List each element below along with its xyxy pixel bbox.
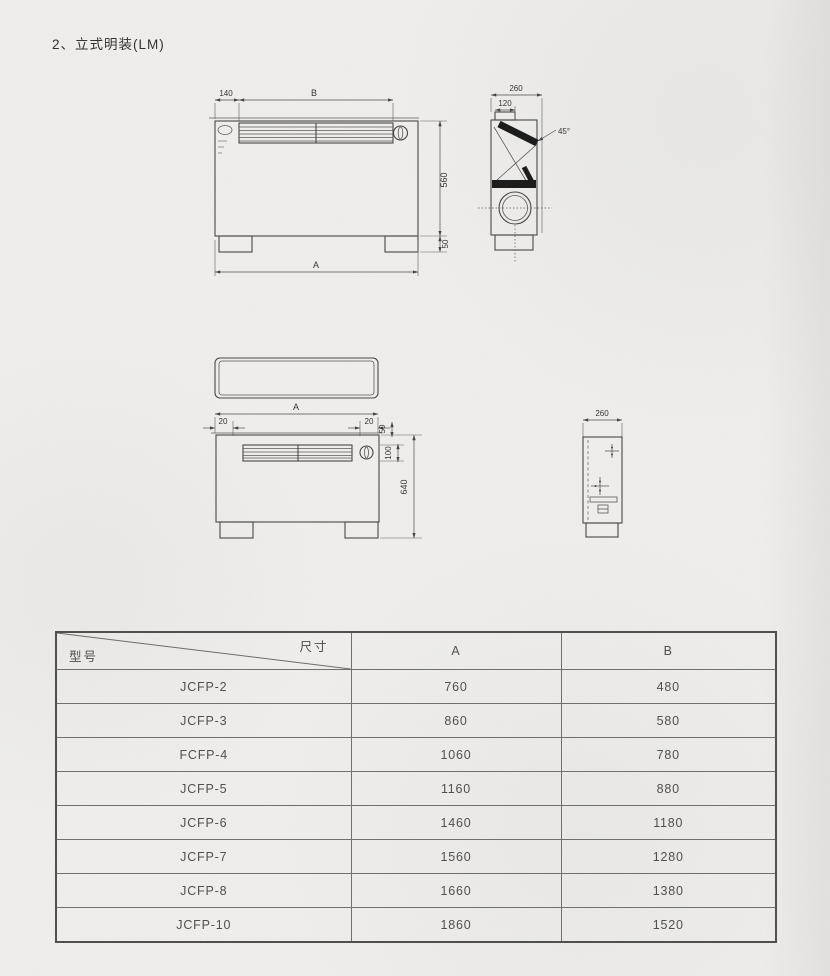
pipe-connection-top <box>605 444 619 458</box>
dim-label-width: A <box>313 260 319 270</box>
connector-block <box>598 505 608 513</box>
pipe-connection-mid <box>591 477 609 495</box>
side-view-2-drawing: 260 <box>583 409 622 537</box>
table-header-row: 型号 尺寸 A B <box>56 632 776 670</box>
foot-right-2 <box>345 522 378 538</box>
cell-model: JCFP-6 <box>56 806 351 840</box>
cell-a: 1460 <box>351 806 561 840</box>
table-row: JCFP-6 1460 1180 <box>56 806 776 840</box>
control-knob-2 <box>360 446 373 459</box>
cell-a: 1660 <box>351 874 561 908</box>
plan-view-drawing <box>215 358 378 398</box>
front-elevation-2-drawing: A 20 20 <box>203 402 422 538</box>
cell-b: 480 <box>561 670 776 704</box>
cell-model: JCFP-2 <box>56 670 351 704</box>
cell-b: 1380 <box>561 874 776 908</box>
dim-label-outlet: 120 <box>498 99 512 108</box>
foot-right <box>385 236 418 252</box>
dim-label-depth: 260 <box>509 84 523 93</box>
cell-b: 580 <box>561 704 776 738</box>
table-row: JCFP-8 1660 1380 <box>56 874 776 908</box>
foot-left-2 <box>220 522 253 538</box>
cell-model: JCFP-10 <box>56 908 351 943</box>
dim-label-foot: 50 <box>441 239 450 248</box>
side-section-drawing: 260 120 45° <box>478 84 570 262</box>
table-header-model-dim: 型号 尺寸 <box>56 632 351 670</box>
dimension-table: 型号 尺寸 A B JCFP-2 760 480 JCFP-3 860 580 … <box>55 631 775 943</box>
table-header-a: A <box>351 632 561 670</box>
cell-model: JCFP-5 <box>56 772 351 806</box>
table-row: JCFP-7 1560 1280 <box>56 840 776 874</box>
dim-label-height: 560 <box>439 172 449 187</box>
dim-label-grille-width: B <box>311 88 317 98</box>
cell-b: 780 <box>561 738 776 772</box>
table-row: FCFP-4 1060 780 <box>56 738 776 772</box>
table-row: JCFP-5 1160 880 <box>56 772 776 806</box>
catalog-page: 2、立式明装(LM) <box>0 0 830 976</box>
nameplate-detail <box>218 126 232 135</box>
header-model-label: 型号 <box>69 646 98 665</box>
cell-b: 1280 <box>561 840 776 874</box>
cell-a: 1560 <box>351 840 561 874</box>
cell-b: 1520 <box>561 908 776 943</box>
cell-model: JCFP-3 <box>56 704 351 738</box>
terminal-strip <box>590 497 617 502</box>
dim-label-depth-2: 260 <box>595 409 609 418</box>
table-header-b: B <box>561 632 776 670</box>
foot-3 <box>586 523 618 537</box>
dim-label-inset: 140 <box>219 89 233 98</box>
foot <box>495 235 533 250</box>
foot-left <box>219 236 252 252</box>
cell-model: JCFP-8 <box>56 874 351 908</box>
cell-model: JCFP-7 <box>56 840 351 874</box>
dim-label-grille-height: 100 <box>384 446 393 460</box>
dim-label-inset-right: 20 <box>365 417 374 426</box>
dim-label-inset-left: 20 <box>219 417 228 426</box>
cell-a: 1060 <box>351 738 561 772</box>
cell-a: 1160 <box>351 772 561 806</box>
cell-a: 760 <box>351 670 561 704</box>
header-dim-label: 尺寸 <box>299 636 328 655</box>
cell-a: 1860 <box>351 908 561 943</box>
front-elevation-drawing: 140 B 560 50 A <box>209 88 450 276</box>
cell-b: 1180 <box>561 806 776 840</box>
drain-pan <box>492 180 536 188</box>
cell-model: FCFP-4 <box>56 738 351 772</box>
dim-label-height-2: 640 <box>399 479 409 494</box>
discharge-outlet <box>495 112 515 120</box>
dimension-drawings: 140 B 560 50 A 260 <box>0 0 830 610</box>
table-row: JCFP-2 760 480 <box>56 670 776 704</box>
dim-label-width-2: A <box>293 402 299 412</box>
table-row: JCFP-3 860 580 <box>56 704 776 738</box>
cell-b: 880 <box>561 772 776 806</box>
control-knob <box>394 126 408 140</box>
cell-a: 860 <box>351 704 561 738</box>
dim-label-angle: 45° <box>558 127 570 136</box>
coil-section <box>499 124 537 143</box>
table-row: JCFP-10 1860 1520 <box>56 908 776 943</box>
dim-label-top-offset: 50 <box>378 424 387 433</box>
